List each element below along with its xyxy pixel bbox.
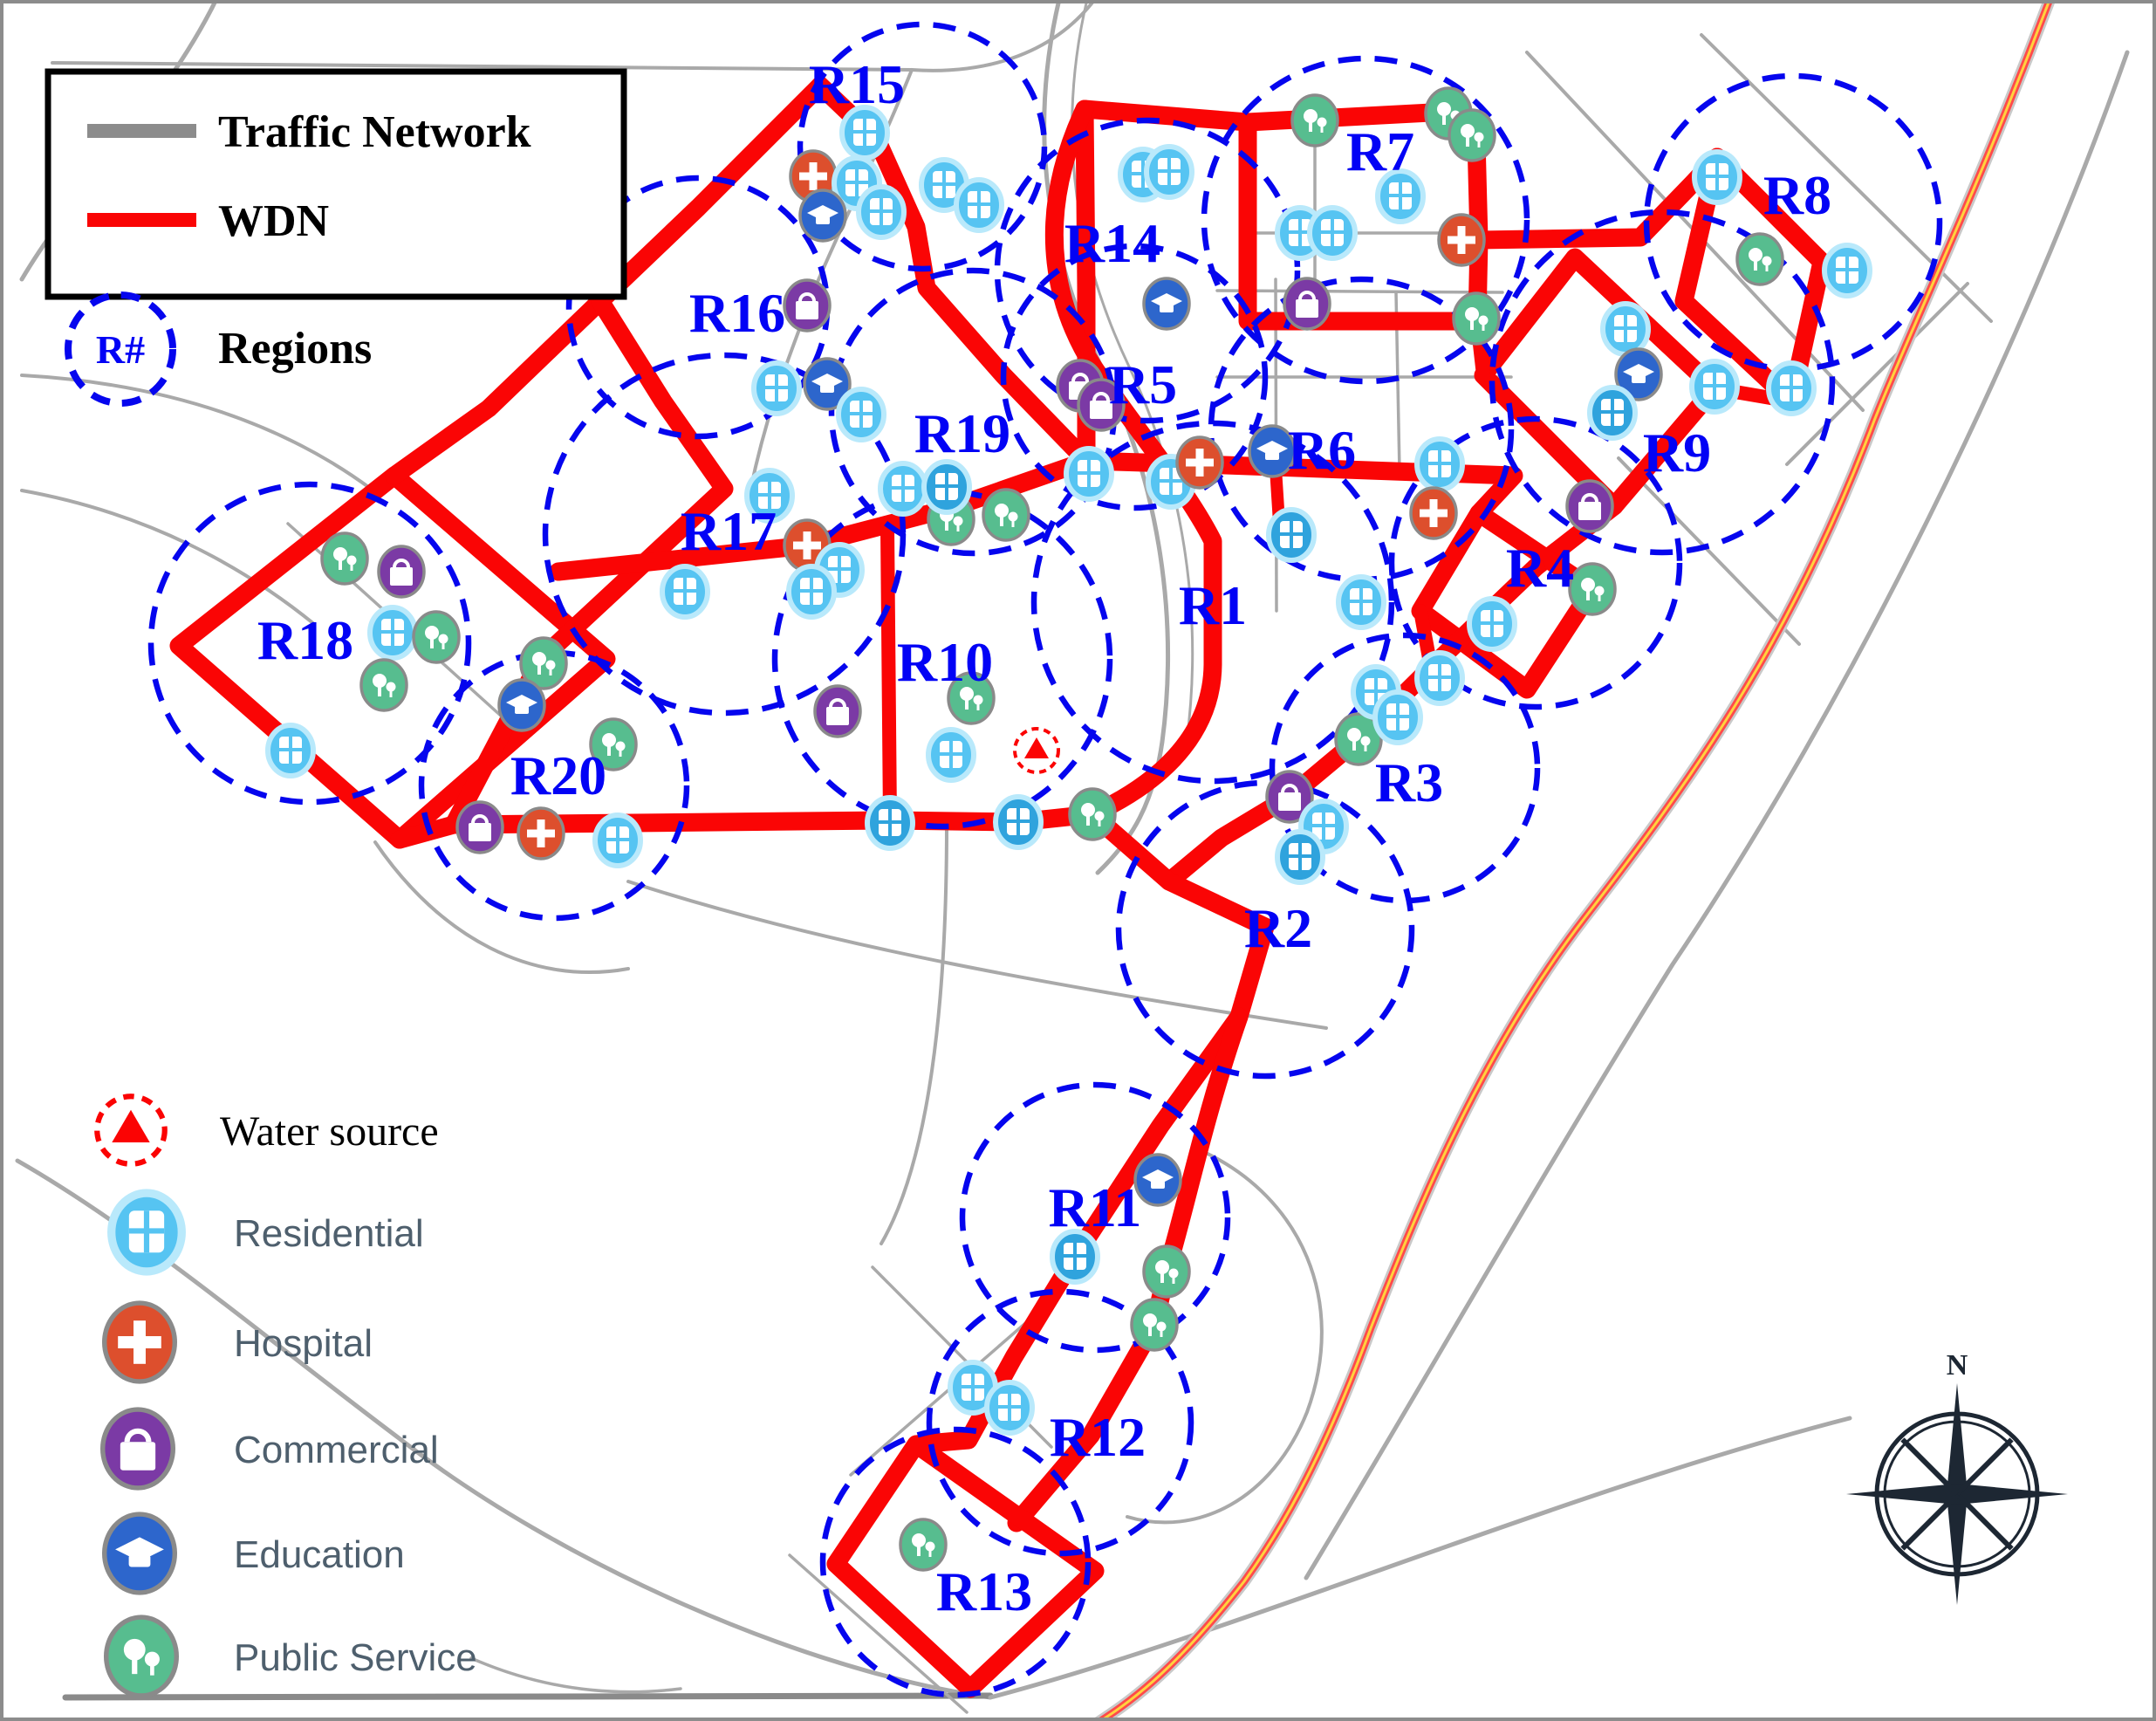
key-public-service-label: Public Service	[234, 1636, 477, 1679]
key-commercial-label: Commercial	[234, 1429, 439, 1471]
residential-icon	[112, 1193, 182, 1272]
residential-icon	[956, 180, 1002, 230]
region-label-r13: R13	[936, 1560, 1032, 1622]
region-label-r7: R7	[1346, 120, 1414, 182]
road	[1217, 291, 1502, 292]
region-label-r12: R12	[1050, 1406, 1146, 1468]
commercial-icon	[784, 280, 830, 331]
region-label-r10: R10	[897, 631, 993, 693]
residential-icon	[595, 815, 640, 866]
education-icon	[1144, 278, 1189, 329]
residential-icon	[880, 463, 926, 514]
residential-icon	[268, 725, 313, 776]
residential-icon	[1417, 439, 1462, 490]
region-label-r15: R15	[809, 53, 905, 115]
education-icon	[499, 680, 544, 730]
map-figure: R1R2R3R4R5R6R7R8R9R10R11R12R13R14R15R16R…	[0, 0, 2156, 1721]
city-map: R1R2R3R4R5R6R7R8R9R10R11R12R13R14R15R16R…	[0, 0, 2156, 1721]
public-service-icon	[1132, 1299, 1177, 1350]
hospital-icon	[1177, 437, 1222, 488]
wdn-pipe	[887, 527, 890, 820]
residential-icon	[1146, 147, 1192, 197]
residential-icon	[1694, 152, 1740, 202]
commercial-icon	[457, 802, 503, 853]
key-hospital-label: Hospital	[234, 1322, 373, 1365]
public-service-icon	[1292, 95, 1338, 146]
hospital-icon	[1411, 488, 1456, 538]
residential-icon	[1277, 832, 1323, 882]
residential-icon	[370, 607, 415, 658]
residential-icon	[662, 566, 708, 617]
education-icon	[105, 1514, 175, 1593]
commercial-icon	[103, 1409, 174, 1488]
public-service-icon	[1449, 110, 1495, 161]
education-icon	[1135, 1155, 1181, 1205]
water-source-icon	[97, 1096, 165, 1164]
residential-icon	[1052, 1231, 1098, 1282]
residential-icon	[1375, 692, 1420, 743]
residential-icon	[1066, 449, 1112, 499]
residential-icon	[754, 363, 799, 414]
public-service-icon	[361, 660, 407, 710]
residential-icon	[987, 1382, 1032, 1433]
legend-wdn-label: WDN	[218, 196, 329, 246]
region-label-r14: R14	[1064, 212, 1160, 274]
residential-icon	[789, 566, 834, 617]
residential-icon	[1417, 653, 1462, 703]
key-education-label: Education	[234, 1533, 405, 1576]
legend-traffic-label: Traffic Network	[218, 107, 531, 157]
residential-icon	[1824, 245, 1870, 296]
hospital-icon	[518, 808, 564, 859]
region-label-r18: R18	[257, 609, 353, 671]
residential-icon	[867, 798, 913, 848]
residential-icon	[1692, 361, 1737, 412]
residential-icon	[1603, 304, 1648, 354]
region-label-r20: R20	[510, 744, 606, 806]
residential-icon	[924, 462, 969, 512]
region-label-r1: R1	[1179, 574, 1247, 636]
residential-icon	[1590, 387, 1635, 438]
key-residential-label: Residential	[234, 1212, 424, 1255]
public-service-icon	[414, 612, 459, 662]
residential-icon	[1338, 577, 1384, 627]
residential-icon	[1769, 363, 1814, 414]
public-service-icon	[1737, 234, 1783, 285]
public-service-icon	[1144, 1246, 1189, 1297]
region-label-r17: R17	[681, 500, 777, 562]
region-label-r8: R8	[1763, 164, 1831, 226]
region-label-r3: R3	[1375, 751, 1443, 813]
residential-icon	[1469, 599, 1515, 649]
region-label-r11: R11	[1049, 1176, 1142, 1238]
region-label-r5: R5	[1109, 353, 1177, 415]
road	[65, 1696, 990, 1697]
commercial-icon	[1284, 278, 1330, 329]
education-icon	[800, 190, 845, 241]
residential-icon	[859, 187, 904, 237]
residential-icon	[928, 730, 974, 780]
commercial-icon	[1567, 481, 1612, 531]
region-label-r9: R9	[1643, 422, 1711, 483]
region-label-r19: R19	[914, 402, 1010, 464]
public-service-icon	[322, 533, 367, 584]
compass-north-label: N	[1947, 1349, 1968, 1382]
residential-icon	[1269, 510, 1314, 560]
region-symbol-text: R#	[96, 327, 145, 372]
legend-regions-label: Regions	[218, 324, 372, 374]
region-label-r6: R6	[1288, 419, 1356, 481]
residential-icon	[838, 389, 884, 440]
residential-icon	[996, 797, 1041, 847]
region-label-r4: R4	[1506, 537, 1574, 599]
legend-box-frame	[48, 72, 624, 297]
commercial-icon	[815, 686, 860, 737]
region-label-r16: R16	[689, 282, 785, 344]
public-service-icon	[983, 490, 1029, 540]
residential-icon	[1310, 208, 1355, 258]
public-service-icon	[1454, 293, 1499, 344]
hospital-icon	[105, 1303, 175, 1382]
water-source-icon	[1015, 729, 1058, 772]
region-label-r2: R2	[1244, 897, 1312, 959]
public-service-icon	[106, 1617, 177, 1696]
hospital-icon	[1439, 215, 1484, 265]
public-service-icon	[1570, 564, 1615, 614]
public-service-icon	[1070, 789, 1115, 840]
key-water-source-label: Water source	[220, 1108, 439, 1155]
commercial-icon	[379, 546, 424, 597]
